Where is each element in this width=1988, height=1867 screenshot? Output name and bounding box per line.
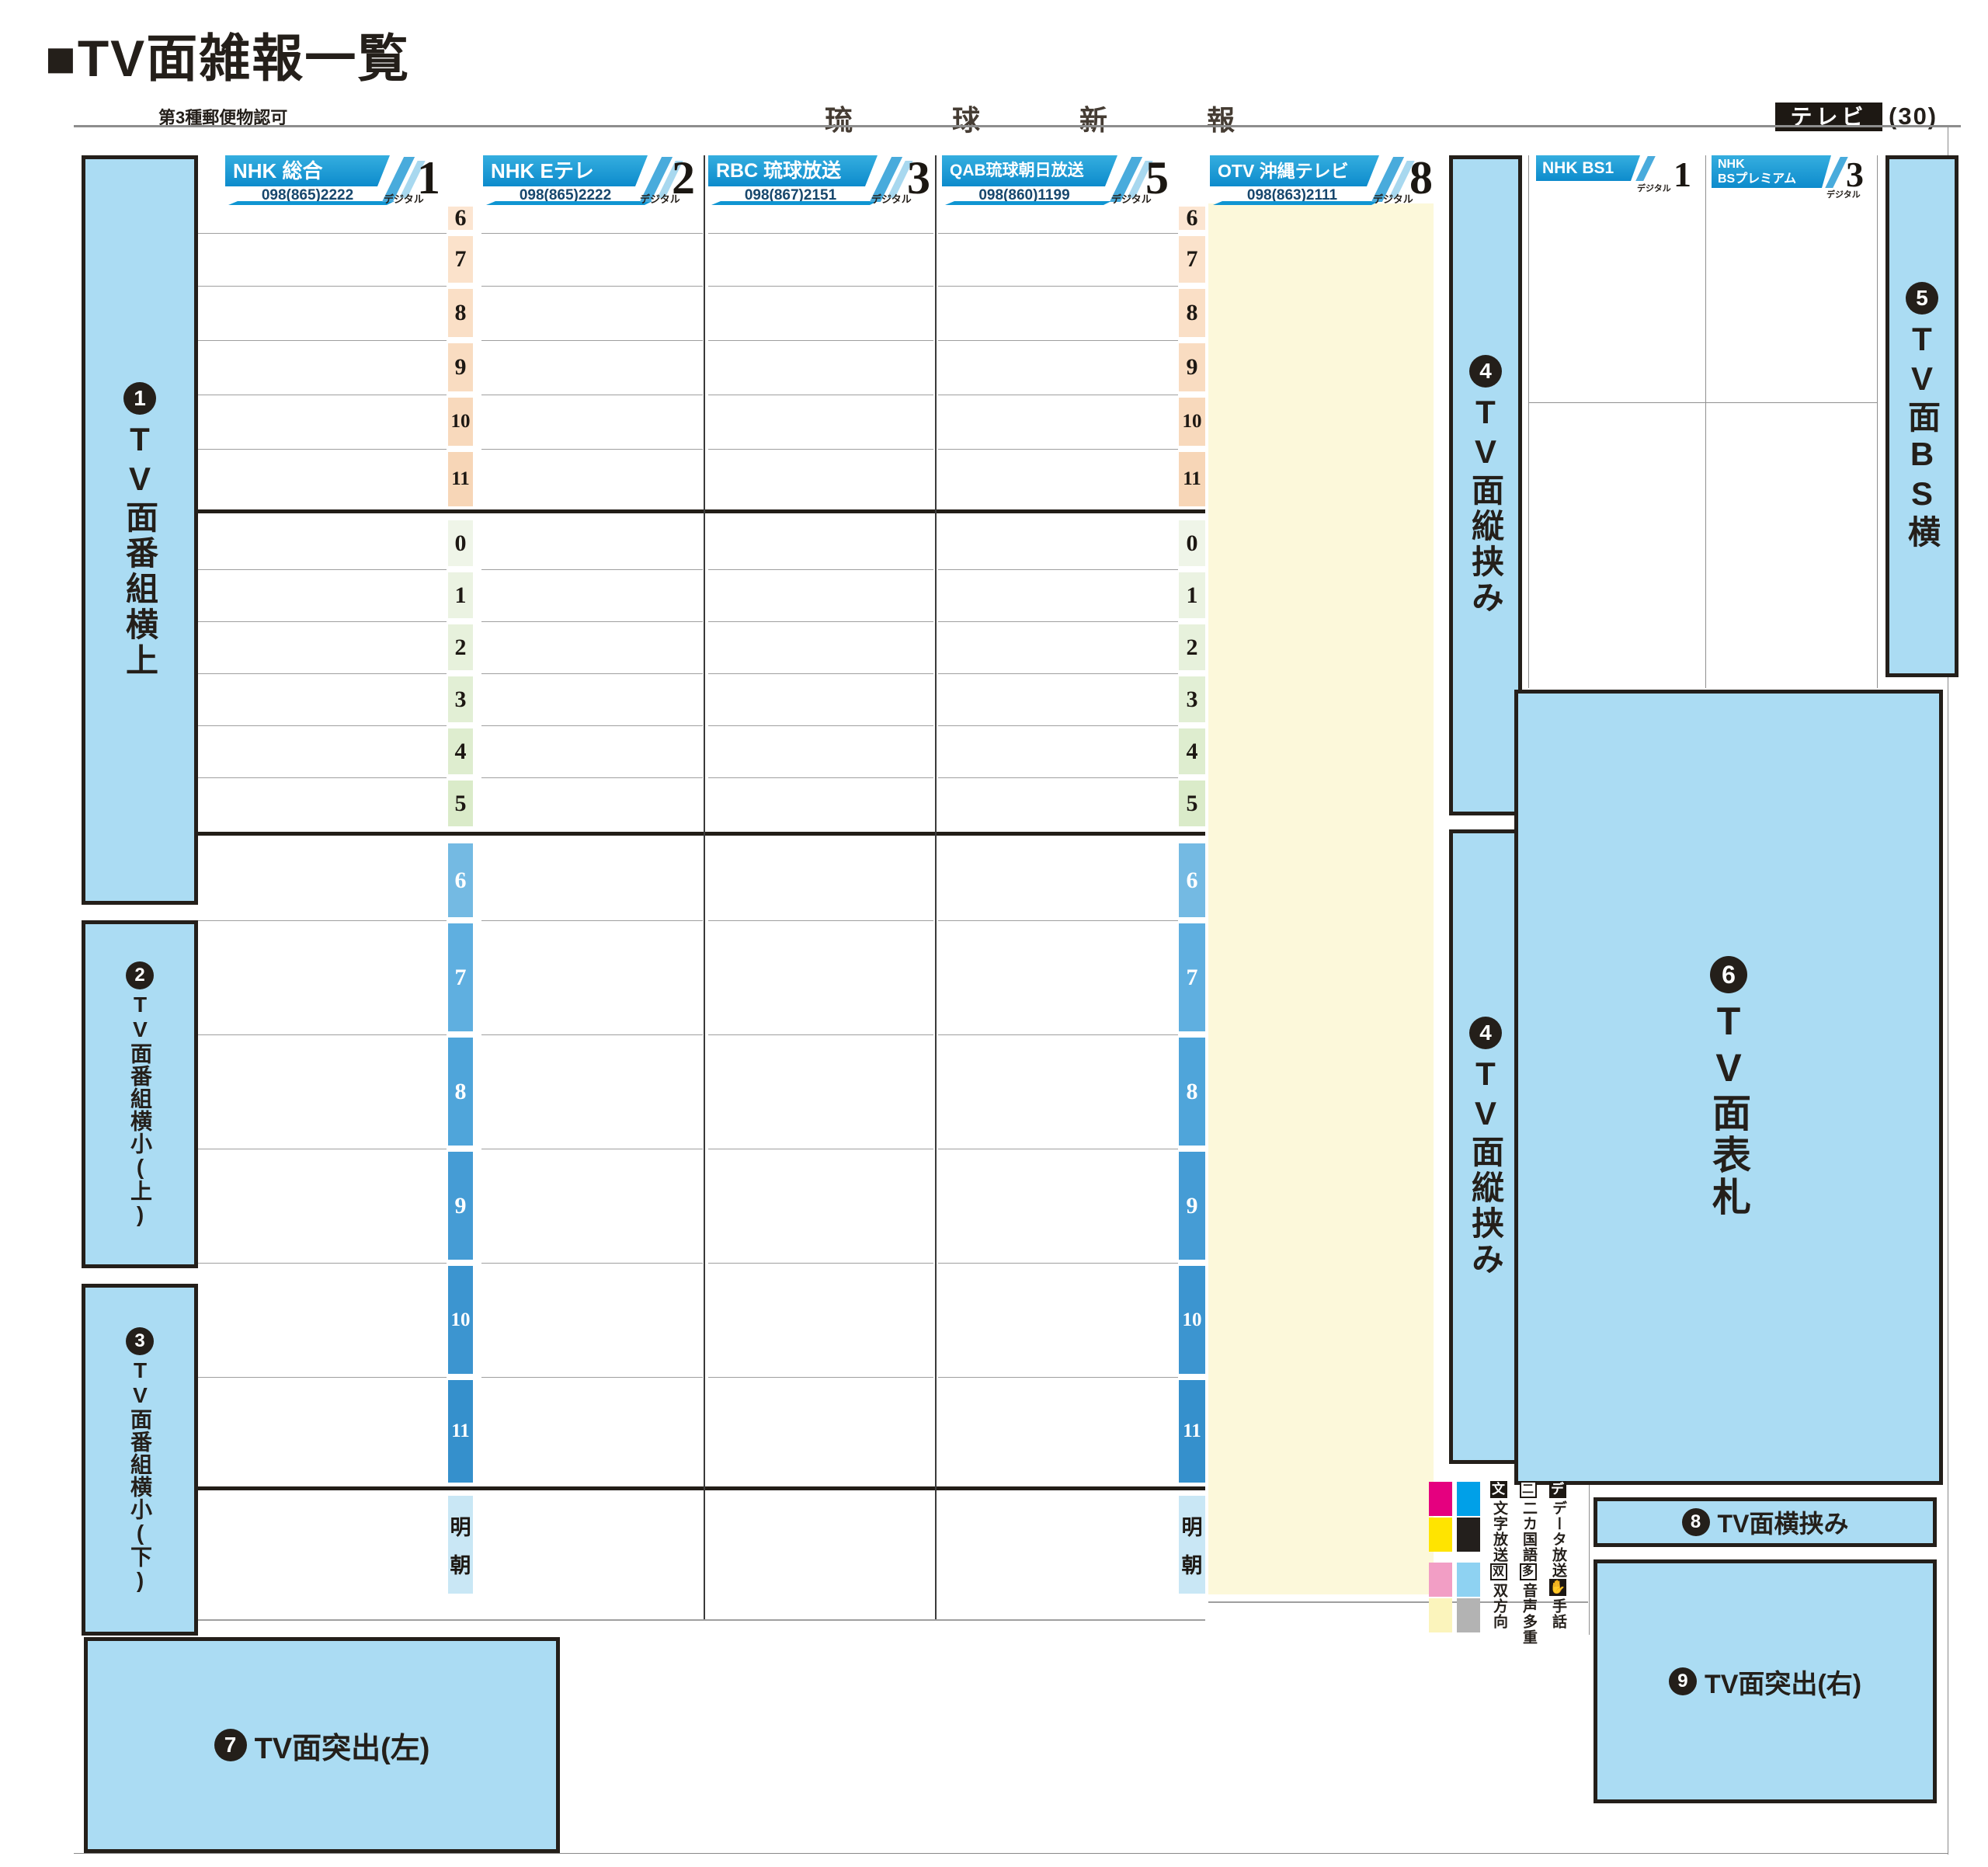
program-row-line xyxy=(938,673,1178,674)
phone-underline xyxy=(945,201,1111,205)
time-cell: 7 xyxy=(448,236,473,283)
overnight-cell: 明朝 xyxy=(1179,1496,1205,1594)
channel-name-line1: NHK xyxy=(1718,157,1831,172)
zone-box-8-tv-yoko-hasami: 8 TV面横挟み xyxy=(1594,1497,1937,1547)
legend-swatch xyxy=(1457,1482,1480,1516)
daypart-divider-line xyxy=(138,1486,1205,1490)
time-cell: 8 xyxy=(1179,289,1205,337)
channel-number: 1 xyxy=(1673,155,1691,194)
program-row-line xyxy=(481,340,703,341)
newspaper-layout-page: ■TV面雑報一覧 第3種郵便物認可 琉球新報 テレビ (30) 67891011… xyxy=(0,0,1988,1867)
program-row-line xyxy=(708,621,933,622)
page-title: ■TV面雑報一覧 xyxy=(45,17,410,92)
header-rule xyxy=(74,125,1961,127)
zone-label: TV面表札 xyxy=(1701,1000,1757,1219)
channel-number: 5 xyxy=(1145,153,1169,203)
channel-name: QAB琉球朝日放送 xyxy=(942,155,1117,186)
bs-column-divider-line xyxy=(1877,155,1878,688)
channel-number: 8 xyxy=(1409,153,1433,203)
legend-column-teletext: 文文字放送双双方向 xyxy=(1486,1480,1511,1690)
newspaper-name: 琉球新報 xyxy=(825,98,1334,138)
channel-number: 2 xyxy=(672,153,695,203)
program-row-line xyxy=(938,233,1178,234)
time-cell: 11 xyxy=(1179,1380,1205,1483)
channel-name: OTV 沖縄テレビ xyxy=(1210,155,1379,186)
column-divider-line xyxy=(935,155,937,1619)
program-row-line xyxy=(481,569,703,570)
digital-label: デジタル xyxy=(1373,191,1413,206)
daypart-divider-line xyxy=(138,509,1205,513)
time-cell: 8 xyxy=(448,1038,473,1146)
channel-name: NHK BS1 xyxy=(1536,155,1640,181)
otv-column-background xyxy=(1208,203,1434,1594)
program-row-line xyxy=(938,920,1178,921)
time-cell: 4 xyxy=(1179,728,1205,774)
zone-number-badge: 4 xyxy=(1469,1017,1502,1049)
channel-name: RBC 琉球放送 xyxy=(708,155,878,186)
time-cell: 8 xyxy=(448,289,473,337)
channel-number: 3 xyxy=(907,153,930,203)
zone-number-badge: 5 xyxy=(1906,282,1938,315)
time-cell: 7 xyxy=(1179,236,1205,283)
sign-language-hand-icon: ✋ xyxy=(1549,1579,1566,1596)
zone-label: TV面突出(右) xyxy=(1705,1663,1861,1701)
zone-label: TV面番組横上 xyxy=(116,421,164,679)
time-cell: 11 xyxy=(448,1380,473,1483)
program-row-line xyxy=(938,569,1178,570)
channel-name: NHK BSプレミアム xyxy=(1712,155,1831,188)
program-row-line xyxy=(938,1263,1178,1264)
phone-underline xyxy=(228,201,394,205)
channel-header-rbc: RBC 琉球放送 098(867)2151 デジタル 3 xyxy=(708,155,930,205)
legend-text: 双方向 xyxy=(1491,1583,1507,1629)
channel-header-nhk-etele: NHK Eテレ 098(865)2222 デジタル 2 xyxy=(483,155,695,205)
time-cell: 5 xyxy=(448,781,473,826)
program-row-line xyxy=(938,340,1178,341)
program-row-line xyxy=(708,1149,933,1149)
program-row-line xyxy=(938,1149,1178,1149)
zone-box-3-tv-bangumi-yoko-sho-shita: 3 TV面番組横小(下) xyxy=(82,1284,198,1636)
program-row-line xyxy=(708,286,933,287)
program-row-line xyxy=(708,233,933,234)
legend-swatch xyxy=(1429,1598,1452,1632)
bs-row-line xyxy=(1528,402,1877,403)
program-row-line xyxy=(708,725,933,726)
program-row-line xyxy=(481,286,703,287)
slash-stripe-icon xyxy=(1635,156,1656,181)
legend-separator-line xyxy=(1589,1476,1590,1635)
zone-box-5-tv-bs-yoko: 5 TV面BS横 xyxy=(1885,155,1958,677)
zone-number-badge: 7 xyxy=(214,1729,247,1761)
program-row-line xyxy=(708,673,933,674)
zone-box-7-tv-tosshutsu-left: 7 TV面突出(左) xyxy=(84,1637,560,1853)
data-broadcast-icon: デ xyxy=(1549,1481,1566,1498)
zone-box-1-tv-bangumi-yoko-ue: 1 TV面番組横上 xyxy=(82,155,198,905)
program-row-line xyxy=(708,1263,933,1264)
program-row-line xyxy=(708,1034,933,1035)
time-cell: 11 xyxy=(448,452,473,506)
phone-underline xyxy=(711,201,878,205)
program-row-line xyxy=(481,1034,703,1035)
program-row-line xyxy=(938,286,1178,287)
legend-swatch xyxy=(1457,1518,1480,1552)
program-row-line xyxy=(708,395,933,395)
time-cell: 10 xyxy=(448,1266,473,1374)
time-cell: 10 xyxy=(1179,1266,1205,1374)
time-cell: 1 xyxy=(1179,572,1205,618)
time-cell: 11 xyxy=(1179,452,1205,506)
channel-header-otv: OTV 沖縄テレビ 098(863)2111 デジタル 8 xyxy=(1210,155,1433,205)
legend-text: 文字放送 xyxy=(1491,1500,1507,1563)
time-cell: 9 xyxy=(448,343,473,391)
zone-box-6-tv-hyosatsu: 6 TV面表札 xyxy=(1514,690,1943,1485)
time-cell: 1 xyxy=(448,572,473,618)
legend-text: 音声多重 xyxy=(1521,1583,1537,1645)
time-cell: 2 xyxy=(1179,624,1205,670)
program-row-line xyxy=(481,395,703,395)
program-row-line xyxy=(481,725,703,726)
zone-box-4-tv-tate-hasami-upper: 4 TV面縦挟み xyxy=(1449,155,1522,815)
time-cell: 6 xyxy=(448,207,473,230)
channel-header-nhk-sogo: NHK 総合 098(865)2222 デジタル 1 xyxy=(225,155,440,205)
time-cell: 7 xyxy=(1179,923,1205,1031)
program-row-line xyxy=(938,725,1178,726)
zone-number-badge: 6 xyxy=(1710,956,1747,993)
program-row-line xyxy=(481,621,703,622)
channel-header-nhk-bs1: NHK BS1 デジタル 1 xyxy=(1536,155,1691,196)
program-row-line xyxy=(481,233,703,234)
program-row-line xyxy=(708,777,933,778)
time-cell: 9 xyxy=(1179,343,1205,391)
time-cell: 0 xyxy=(1179,520,1205,566)
zone-label: TV面縦挟み xyxy=(1462,1055,1510,1278)
zone-number-badge: 1 xyxy=(123,382,156,415)
phone-underline xyxy=(486,201,652,205)
teletext-icon: 文 xyxy=(1490,1481,1507,1498)
time-cell: 10 xyxy=(1179,398,1205,446)
zone-box-2-tv-bangumi-yoko-sho-ue: 2 TV面番組横小(上) xyxy=(82,920,198,1268)
channel-name-line2: BSプレミアム xyxy=(1718,172,1831,186)
digital-label: デジタル xyxy=(871,191,912,206)
program-row-line xyxy=(938,621,1178,622)
time-cell: 6 xyxy=(1179,843,1205,917)
time-cell: 8 xyxy=(1179,1038,1205,1146)
zone-label: TV面横挟み xyxy=(1718,1504,1849,1540)
column-divider-line xyxy=(704,155,705,1619)
overnight-cell: 明朝 xyxy=(448,1496,473,1594)
zone-number-badge: 3 xyxy=(126,1327,154,1355)
time-cell: 5 xyxy=(1179,781,1205,826)
legend-swatch xyxy=(1429,1482,1452,1516)
time-cell: 7 xyxy=(448,923,473,1031)
time-cell: 3 xyxy=(1179,676,1205,722)
zone-number-badge: 2 xyxy=(126,961,154,989)
time-cell: 0 xyxy=(448,520,473,566)
zone-box-9-tv-tosshutsu-right: 9 TV面突出(右) xyxy=(1594,1559,1937,1803)
zone-number-badge: 8 xyxy=(1682,1508,1710,1536)
legend-swatch xyxy=(1457,1598,1480,1632)
broadcast-symbol-legend: デデータ放送✋手話 二二カ国語多音声多重 文文字放送双双方向 xyxy=(1482,1480,1570,1690)
time-cell: 2 xyxy=(448,624,473,670)
multi-audio-icon: 多 xyxy=(1520,1563,1537,1580)
channel-name: NHK 総合 xyxy=(225,155,390,186)
digital-label: デジタル xyxy=(1637,182,1671,194)
program-row-line xyxy=(708,920,933,921)
time-cell: 6 xyxy=(1179,207,1205,230)
zone-label: TV面番組横小(上) xyxy=(124,993,155,1227)
legend-swatch xyxy=(1429,1518,1452,1552)
program-row-line xyxy=(481,1263,703,1264)
legend-column-data: デデータ放送✋手話 xyxy=(1545,1480,1570,1690)
grid-bottom-rule xyxy=(138,1619,1205,1621)
zone-label: TV面突出(左) xyxy=(255,1724,430,1767)
program-row-line xyxy=(708,449,933,450)
time-cell: 4 xyxy=(448,728,473,774)
time-cell: 9 xyxy=(448,1152,473,1260)
program-row-line xyxy=(708,569,933,570)
program-row-line xyxy=(938,777,1178,778)
program-row-line xyxy=(938,395,1178,395)
time-cell: 9 xyxy=(1179,1152,1205,1260)
channel-number: 3 xyxy=(1846,155,1864,194)
program-row-line xyxy=(708,1377,933,1378)
time-cell: 3 xyxy=(448,676,473,722)
legend-swatch xyxy=(1429,1563,1452,1597)
zone-label: TV面縦挟み xyxy=(1462,394,1510,616)
bs-column-divider-line xyxy=(1528,155,1529,688)
bilingual-icon: 二 xyxy=(1520,1481,1537,1498)
channel-header-qab: QAB琉球朝日放送 098(860)1199 デジタル 5 xyxy=(942,155,1169,205)
bs-column-divider-line xyxy=(1705,155,1706,688)
zone-label: TV面番組横小(下) xyxy=(124,1358,155,1593)
program-row-line xyxy=(938,1377,1178,1378)
legend-text: データ放送 xyxy=(1550,1500,1566,1578)
program-row-line xyxy=(708,340,933,341)
legend-swatch xyxy=(1457,1563,1480,1597)
program-row-line xyxy=(481,1149,703,1149)
program-row-line xyxy=(938,1034,1178,1035)
channel-header-nhk-bs-premium: NHK BSプレミアム デジタル 3 xyxy=(1712,155,1864,196)
page-bottom-border xyxy=(74,1853,1948,1854)
zone-number-badge: 9 xyxy=(1669,1667,1697,1695)
time-cell: 10 xyxy=(448,398,473,446)
program-row-line xyxy=(938,449,1178,450)
phone-underline xyxy=(1213,201,1379,205)
program-row-line xyxy=(481,673,703,674)
daypart-divider-line xyxy=(138,832,1205,836)
program-row-line xyxy=(481,920,703,921)
program-row-line xyxy=(481,449,703,450)
channel-number: 1 xyxy=(417,153,440,203)
zone-box-4-tv-tate-hasami-lower: 4 TV面縦挟み xyxy=(1449,829,1522,1464)
legend-text: 手話 xyxy=(1550,1598,1566,1629)
zone-label: TV面BS横 xyxy=(1899,321,1946,551)
zone-number-badge: 4 xyxy=(1469,355,1502,388)
legend-text: 二カ国語 xyxy=(1521,1500,1537,1563)
program-row-line xyxy=(481,1377,703,1378)
legend-column-bilingual: 二二カ国語多音声多重 xyxy=(1516,1480,1541,1690)
channel-name: NHK Eテレ xyxy=(483,155,648,186)
interactive-icon: 双 xyxy=(1490,1563,1507,1580)
program-row-line xyxy=(481,777,703,778)
time-cell: 6 xyxy=(448,843,473,917)
